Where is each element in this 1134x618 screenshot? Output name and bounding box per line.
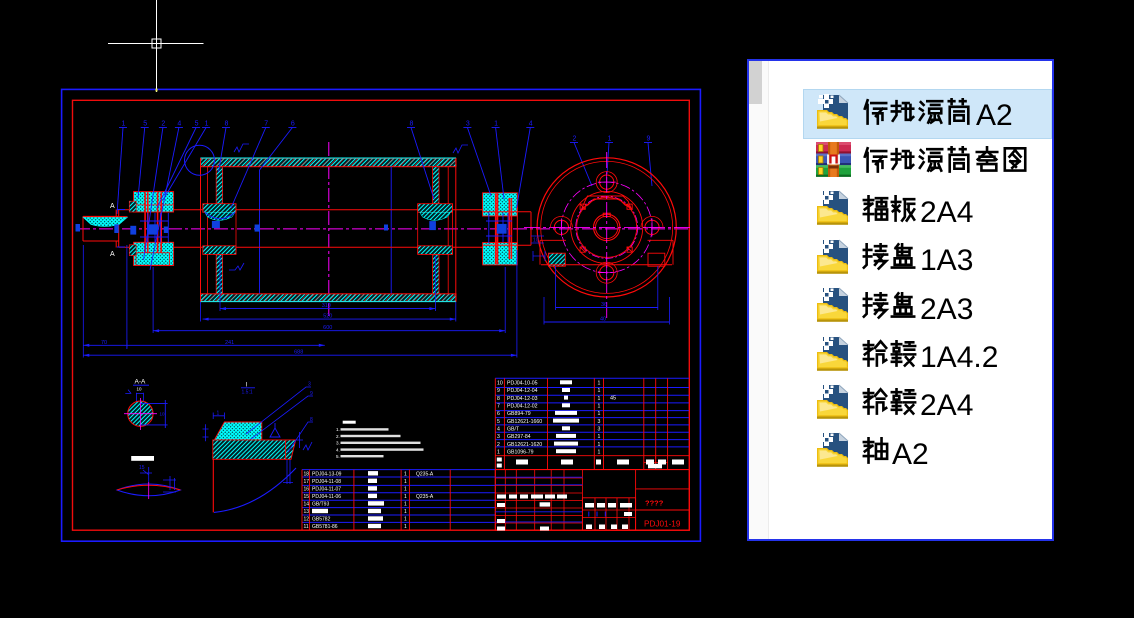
svg-text:1: 1 [598, 411, 601, 417]
svg-text:2: 2 [573, 136, 577, 143]
svg-text:5.: 5. [336, 454, 340, 459]
svg-text:600: 600 [323, 325, 332, 331]
svg-text:1: 1 [598, 434, 601, 440]
svg-text:PDJ04-11-06: PDJ04-11-06 [312, 494, 341, 500]
svg-text:1: 1 [217, 411, 220, 417]
svg-text:3: 3 [598, 419, 601, 425]
svg-text:PDJ04-12-04: PDJ04-12-04 [507, 388, 538, 394]
svg-text:9: 9 [497, 388, 500, 394]
svg-text:GB12621-1660: GB12621-1660 [507, 419, 542, 425]
svg-text:2A3: 2A3 [920, 293, 973, 326]
svg-text:PDJ04-10-05: PDJ04-10-05 [507, 381, 538, 387]
svg-text:1: 1 [608, 136, 612, 143]
svg-text:3: 3 [598, 427, 601, 433]
svg-text:15: 15 [304, 494, 310, 500]
svg-text:8: 8 [410, 121, 414, 128]
svg-text:GB5782: GB5782 [312, 517, 331, 523]
svg-text:PDJ04-12-02: PDJ04-12-02 [507, 404, 538, 410]
svg-text:4.: 4. [336, 447, 340, 452]
svg-text:1: 1 [404, 524, 407, 530]
svg-text:Q235-A: Q235-A [416, 494, 434, 500]
svg-text:GB5781-86: GB5781-86 [312, 524, 338, 530]
svg-text:40: 40 [600, 317, 606, 323]
svg-text:3: 3 [308, 382, 311, 388]
svg-text:3: 3 [497, 434, 500, 440]
svg-text:10: 10 [533, 238, 539, 244]
svg-text:9: 9 [310, 391, 313, 397]
svg-text:A2: A2 [892, 438, 929, 471]
svg-text:4: 4 [497, 427, 500, 433]
svg-text:Q235-A: Q235-A [416, 472, 434, 478]
svg-text:16: 16 [304, 487, 310, 493]
svg-text:GB/T: GB/T [507, 427, 520, 433]
svg-text:????: ???? [645, 499, 664, 508]
svg-text:13: 13 [304, 509, 310, 515]
svg-text:PDJ04-13-09: PDJ04-13-09 [312, 472, 342, 478]
svg-text:10: 10 [137, 387, 143, 392]
svg-text:PDJ04-12-03: PDJ04-12-03 [507, 396, 538, 402]
svg-text:GB12621-1620: GB12621-1620 [507, 442, 542, 448]
svg-text:520: 520 [323, 314, 332, 320]
svg-text:1: 1 [404, 517, 407, 523]
svg-text:1.: 1. [336, 427, 340, 432]
svg-text:2: 2 [161, 121, 165, 128]
svg-text:45: 45 [610, 396, 616, 402]
svg-text:1: 1 [404, 494, 407, 500]
svg-text:3: 3 [466, 121, 470, 128]
svg-text:6: 6 [497, 411, 500, 417]
svg-text:1: 1 [598, 404, 601, 410]
svg-text:PDJ04-11-08: PDJ04-11-08 [312, 479, 341, 485]
svg-text:1: 1 [598, 388, 601, 394]
svg-text:4: 4 [529, 121, 533, 128]
svg-text:15: 15 [139, 465, 145, 471]
svg-text:12: 12 [304, 517, 310, 523]
svg-text:6: 6 [291, 121, 295, 128]
svg-text:A-A: A-A [135, 379, 147, 386]
svg-text:1: 1 [404, 509, 407, 515]
svg-text:5: 5 [497, 419, 500, 425]
svg-text:A2: A2 [976, 99, 1013, 132]
svg-text:4: 4 [177, 121, 181, 128]
svg-text:18: 18 [304, 472, 310, 478]
svg-text:1: 1 [404, 487, 407, 493]
svg-text:8: 8 [497, 396, 500, 402]
svg-text:36: 36 [601, 302, 607, 308]
svg-text:1: 1 [598, 396, 601, 402]
svg-text:2A4: 2A4 [920, 196, 973, 229]
svg-text:5: 5 [143, 121, 147, 128]
svg-text:7: 7 [497, 404, 500, 410]
svg-text:9: 9 [647, 136, 651, 143]
svg-text:1: 1 [598, 449, 601, 455]
svg-text:1: 1 [404, 502, 407, 508]
svg-text:241: 241 [225, 340, 234, 346]
svg-text:GB894-79: GB894-79 [507, 411, 531, 417]
svg-text:1A3: 1A3 [920, 244, 973, 277]
svg-text:1: 1 [494, 121, 498, 128]
svg-text:3.: 3. [336, 441, 340, 446]
svg-text:8: 8 [225, 121, 229, 128]
svg-text:10: 10 [160, 412, 166, 417]
svg-text:11: 11 [304, 524, 309, 530]
svg-text:1: 1 [404, 479, 407, 485]
svg-text:688: 688 [294, 350, 303, 356]
svg-text:10: 10 [497, 381, 503, 387]
svg-text:A: A [110, 203, 115, 210]
svg-text:2.: 2. [336, 434, 340, 439]
svg-text:1: 1 [598, 442, 601, 448]
svg-text:8: 8 [310, 417, 313, 423]
svg-text:GB/T93: GB/T93 [312, 502, 329, 508]
svg-text:310: 310 [322, 303, 331, 309]
svg-text:1: 1 [205, 121, 209, 128]
svg-text:1.5:1: 1.5:1 [242, 390, 253, 396]
svg-text:2A4: 2A4 [920, 389, 973, 422]
svg-text:1: 1 [598, 381, 601, 387]
svg-text:PDJ04-11-07: PDJ04-11-07 [312, 487, 341, 493]
svg-text:70: 70 [101, 340, 107, 346]
svg-text:PDJ01-19: PDJ01-19 [644, 520, 681, 529]
svg-text:1: 1 [122, 121, 126, 128]
svg-text:14: 14 [304, 502, 310, 508]
svg-text:5: 5 [195, 121, 199, 128]
svg-text:GB1096-79: GB1096-79 [507, 449, 534, 455]
svg-text:A: A [110, 251, 115, 258]
svg-text:7: 7 [264, 121, 268, 128]
svg-text:17: 17 [304, 479, 310, 485]
svg-text:1A4.2: 1A4.2 [920, 341, 998, 374]
svg-text:2: 2 [497, 442, 500, 448]
svg-text:1: 1 [404, 472, 407, 478]
svg-text:GB297-84: GB297-84 [507, 434, 531, 440]
svg-text:1: 1 [497, 449, 500, 455]
